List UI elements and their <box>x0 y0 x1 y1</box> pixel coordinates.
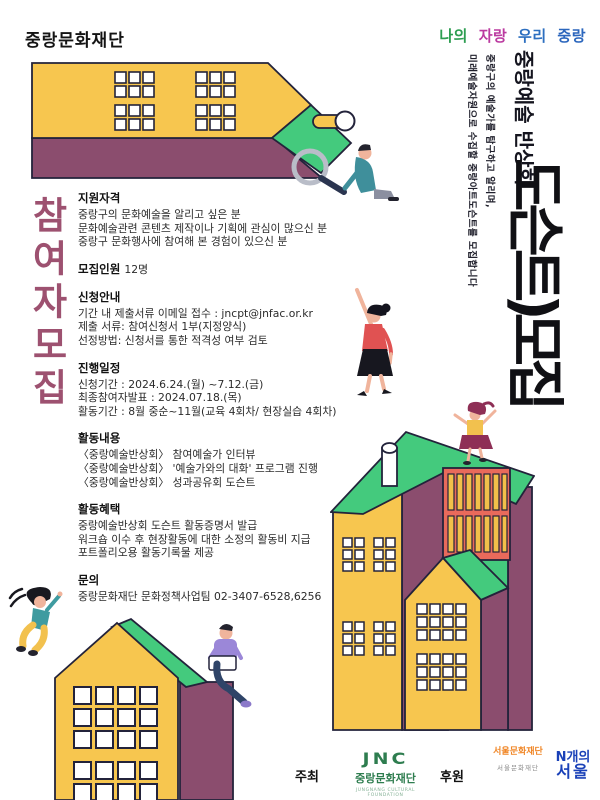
big-house-illustration <box>330 392 535 737</box>
left-vertical-title: 참여자모집 <box>28 196 65 446</box>
jnc-logo-caption: JUNGNANG CULTURAL FOUNDATION <box>338 788 433 798</box>
section-heading: 활동혜택 <box>78 501 368 517</box>
section-activities: 활동내용 〈중랑예술반상회〉 참여예술가 인터뷰 〈중랑예술반상회〉 '예술가와… <box>78 430 368 489</box>
section-line: 워크숍 이수 후 현장활동에 대한 소정의 활동비 지급 <box>78 533 368 547</box>
slogan-word: 자랑 <box>479 27 508 45</box>
seoul-foundation-logo: 서울문화재단 서울문화재단 <box>492 748 544 772</box>
slogan-word: 우리 <box>518 27 547 45</box>
section-line: 중랑예술반상회 도슨트 활동증명서 발급 <box>78 519 368 533</box>
city-slogan: 나의 자랑 우리 중랑 <box>434 25 586 46</box>
slogan-word: 나의 <box>439 27 468 45</box>
jumping-woman <box>10 587 63 656</box>
chimney <box>382 443 397 486</box>
pointing-woman <box>344 284 400 400</box>
section-heading: 신청안내 <box>78 289 368 305</box>
body-copy: 지원자격 중랑구의 문화예술을 알리고 싶은 분 문화예술관련 콘텐츠 제작이나… <box>78 190 368 616</box>
section-apply: 신청안내 기간 내 제출서류 이메일 접수 : jncpt@jnfac.or.k… <box>78 289 368 348</box>
host-label: 주최 <box>295 766 319 785</box>
keyhole-icon <box>313 112 355 131</box>
jnc-foundation-logo: JNC 중랑문화재단 JUNGNANG CULTURAL FOUNDATION <box>338 750 433 798</box>
tag-house-illustration <box>22 57 400 205</box>
section-line: 기간 내 제출서류 이메일 접수 : jncpt@jnfac.or.kr <box>78 307 368 321</box>
right-taglines: 중랑구의 예술가를 탐구하고 알리며, 미래예술자원으로 수집할 중랑아트도슨트… <box>462 54 498 454</box>
section-line: 포트폴리오용 활동기록물 제공 <box>78 546 368 560</box>
section-heading: 모집인원 <box>78 262 120 276</box>
n-seoul-logo: N개의 서울 <box>551 752 595 780</box>
section-line: 문화예술관련 콘텐츠 제작이나 기획에 관심이 많으신 분 <box>78 222 368 236</box>
tagline-1: 중랑구의 예술가를 탐구하고 알리며, <box>480 54 498 454</box>
section-line: 중랑구 문화행사에 참여해 본 경험이 있으신 분 <box>78 235 368 249</box>
section-benefits: 활동혜택 중랑예술반상회 도슨트 활동증명서 발급 워크숍 이수 후 현장활동에… <box>78 501 368 560</box>
section-heading: 지원자격 <box>78 190 368 206</box>
section-line: 〈중랑예술반상회〉 성과공유회 도슨트 <box>78 476 368 490</box>
poster: 중랑문화재단 나의 자랑 우리 중랑 참여자모집 지원자격 중랑구의 문화예술을… <box>0 0 600 800</box>
section-line: 〈중랑예술반상회〉 '예술가와의 대화' 프로그램 진행 <box>78 462 368 476</box>
section-line: 제출 서류: 참여신청서 1부(지정양식) <box>78 320 368 334</box>
section-heading: 활동내용 <box>78 430 368 446</box>
section-line: 〈중랑예술반상회〉 참여예술가 인터뷰 <box>78 448 368 462</box>
n-seoul-line2: 서울 <box>551 764 595 779</box>
section-heading: 진행일정 <box>78 360 368 376</box>
slogan-word: 중랑 <box>557 27 586 45</box>
sfac-logo-caption: 서울문화재단 <box>492 762 544 772</box>
slat-window-panel <box>443 468 510 560</box>
main-title: 도슨트)모집 <box>506 158 564 598</box>
jnc-logo-mark: JNC <box>338 751 433 767</box>
section-line: 신청기간 : 2024.6.24.(월) ~7.12.(금) <box>78 378 368 392</box>
tagline-2: 미래예술자원으로 수집할 중랑아트도슨트를 모집합니다 <box>462 54 480 454</box>
left-house-illustration <box>0 575 260 800</box>
section-line: 중랑구의 문화예술을 알리고 싶은 분 <box>78 208 368 222</box>
tag-house-base <box>32 138 322 178</box>
headcount-value: 12명 <box>124 263 148 276</box>
sfac-logo-mark: 서울문화재단 <box>492 748 544 758</box>
section-line: 최종참여자발표 : 2024.07.18.(목) <box>78 391 368 405</box>
tag-house-wall <box>32 63 311 138</box>
section-line: 활동기간 : 8월 중순~11월(교육 4회차/ 현장실습 4회차) <box>78 405 368 419</box>
sponsor-label: 후원 <box>440 766 464 785</box>
section-headcount: 모집인원12명 <box>78 261 368 277</box>
jnc-logo-name: 중랑문화재단 <box>338 770 433 786</box>
brand-name: 중랑문화재단 <box>25 26 125 51</box>
section-line: 선정방법: 신청서를 통한 적격성 여부 검토 <box>78 334 368 348</box>
section-qualifications: 지원자격 중랑구의 문화예술을 알리고 싶은 분 문화예술관련 콘텐츠 제작이나… <box>78 190 368 249</box>
section-schedule: 진행일정 신청기간 : 2024.6.24.(월) ~7.12.(금) 최종참여… <box>78 360 368 419</box>
